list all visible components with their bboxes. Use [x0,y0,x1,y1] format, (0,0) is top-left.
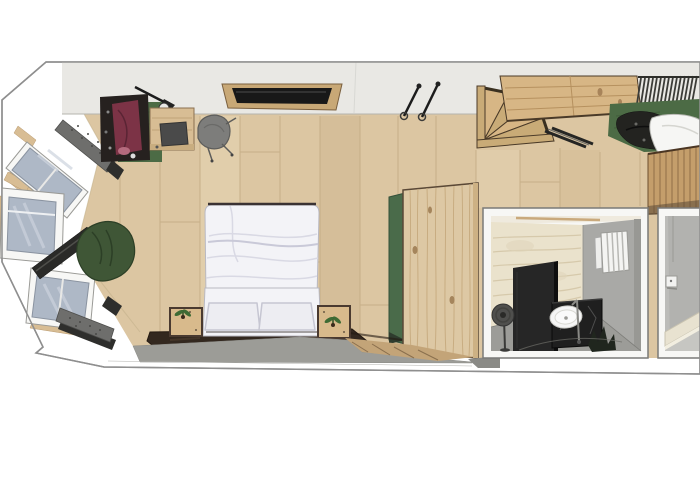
nightstand-right [318,306,350,338]
double-bed [203,204,321,336]
nightstand-left [170,308,202,336]
tv-screen [232,88,332,104]
clothes-rack [100,94,150,162]
beanbag-chair [77,222,135,281]
drain [564,316,568,320]
bathroom-inset-main [483,208,648,358]
window-glass [7,197,56,255]
privacy-panel [513,261,558,351]
bathroom-view [491,216,641,352]
desk-knob [156,146,159,149]
wall-tv [222,84,342,110]
duvet [205,205,319,298]
wardrobe [403,183,478,358]
floor-plan-rendering [0,0,700,500]
wardrobe-partition [389,183,478,358]
pillow-right [259,303,315,330]
pillow-left [205,303,260,330]
bathroom-side-view [665,216,700,351]
towel-radiator [595,231,629,273]
laptop [160,122,188,146]
bathroom-inset-side [658,208,700,358]
wardrobe-edge [473,183,478,358]
paper-holder [666,276,677,289]
floor-plan-page [0,0,700,500]
desk [150,108,194,150]
slat-wall [648,146,700,215]
